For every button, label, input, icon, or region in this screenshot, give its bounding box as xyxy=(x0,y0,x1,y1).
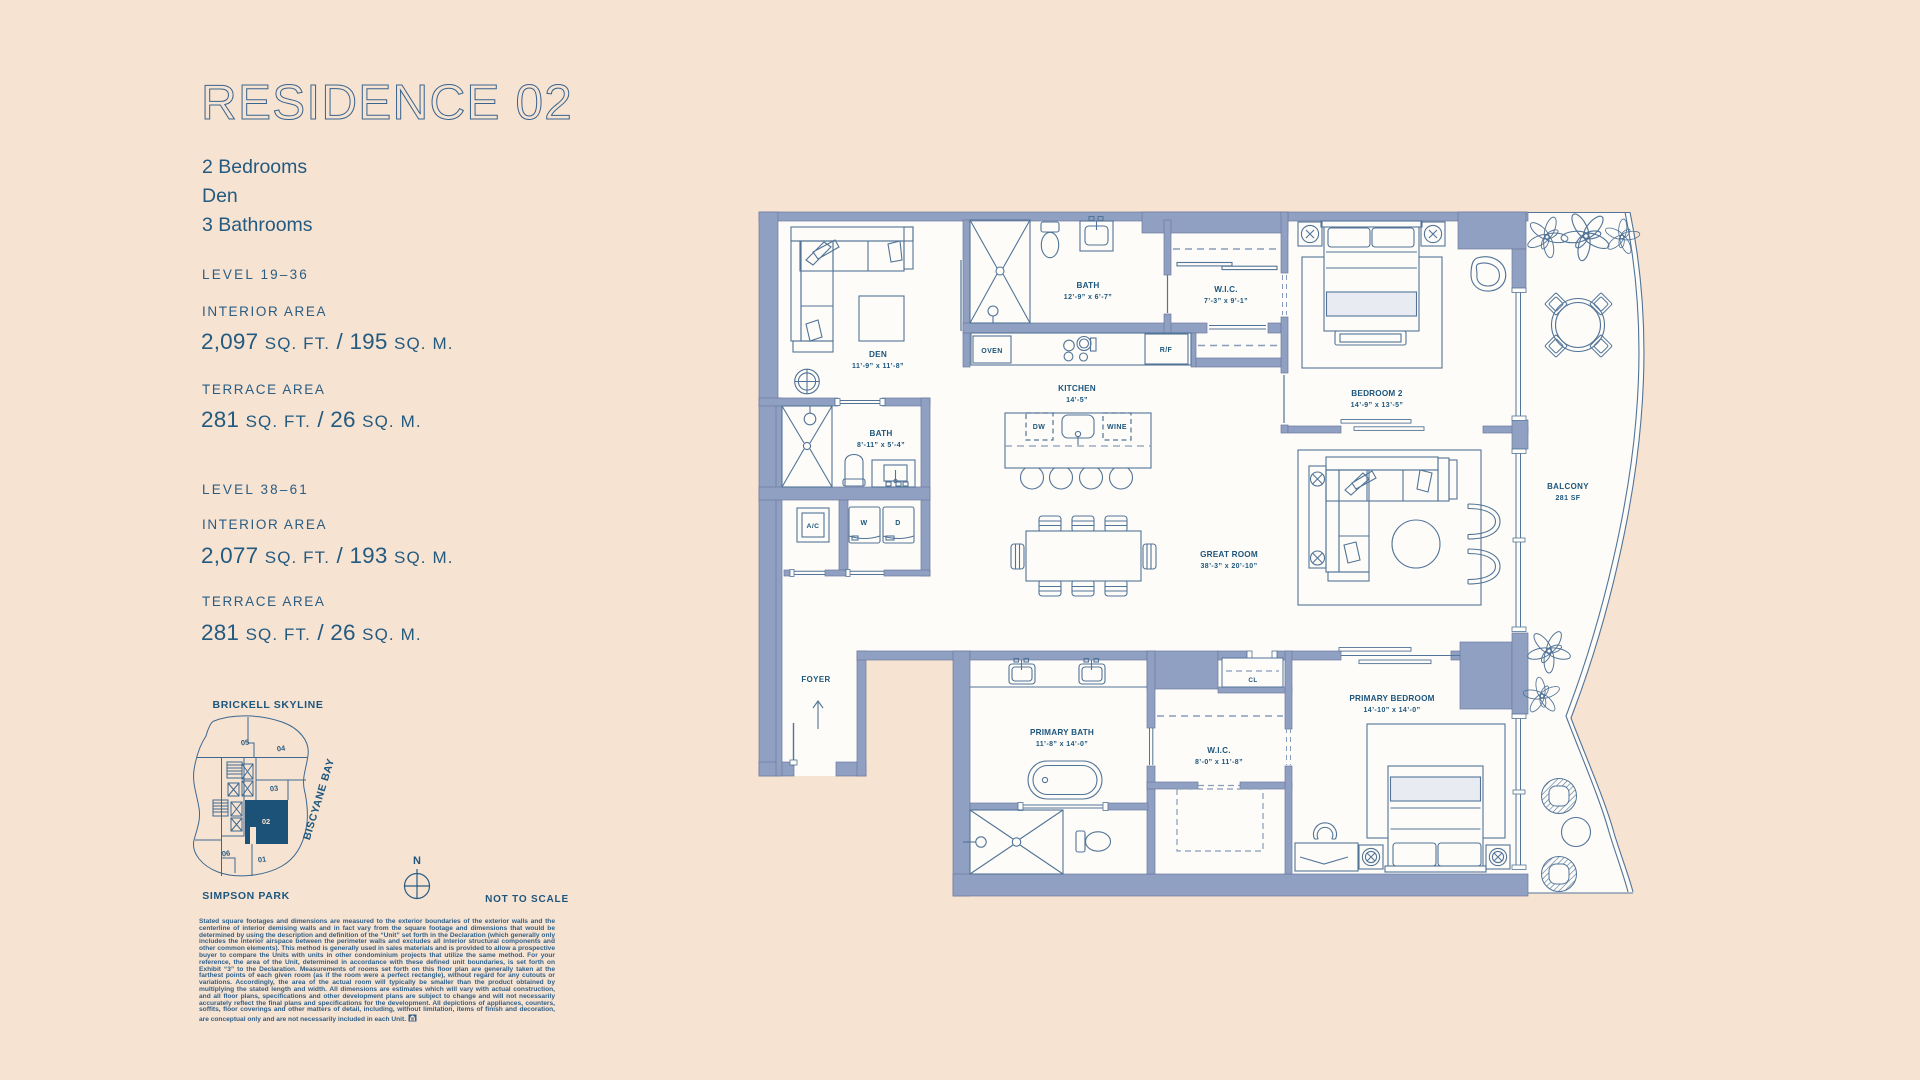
svg-text:8’-0” x 11’-8”: 8’-0” x 11’-8” xyxy=(1195,759,1243,766)
svg-text:03: 03 xyxy=(269,783,279,793)
svg-text:PRIMARY BEDROOM: PRIMARY BEDROOM xyxy=(1349,694,1434,703)
svg-text:D: D xyxy=(895,520,900,527)
svg-text:8’-11” x 5’-4”: 8’-11” x 5’-4” xyxy=(857,442,905,449)
svg-text:N: N xyxy=(413,855,421,867)
svg-text:BEDROOM 2: BEDROOM 2 xyxy=(1351,389,1403,398)
svg-text:38’-3” x 20’-10”: 38’-3” x 20’-10” xyxy=(1201,563,1258,570)
svg-text:FOYER: FOYER xyxy=(801,675,830,684)
svg-text:OVEN: OVEN xyxy=(981,348,1002,355)
svg-text:DW: DW xyxy=(1033,424,1045,431)
svg-text:281 SF: 281 SF xyxy=(1556,495,1581,502)
svg-text:PRIMARY BATH: PRIMARY BATH xyxy=(1030,728,1094,737)
svg-text:WINE: WINE xyxy=(1107,424,1127,431)
svg-text:R/F: R/F xyxy=(1160,347,1173,354)
svg-text:04: 04 xyxy=(276,743,286,753)
svg-text:W: W xyxy=(860,520,867,527)
svg-text:11’-9” x 11’-8”: 11’-9” x 11’-8” xyxy=(852,363,904,370)
svg-text:BATH: BATH xyxy=(870,429,893,438)
svg-text:BRICKELL SKYLINE: BRICKELL SKYLINE xyxy=(213,699,324,711)
svg-text:12’-9” x 6’-7”: 12’-9” x 6’-7” xyxy=(1064,294,1112,301)
svg-text:CL: CL xyxy=(1248,677,1257,684)
svg-text:14’-9” x 13’-5”: 14’-9” x 13’-5” xyxy=(1351,402,1404,409)
svg-text:A/C: A/C xyxy=(807,523,820,530)
svg-text:06: 06 xyxy=(221,848,231,858)
svg-text:BATH: BATH xyxy=(1077,281,1100,290)
svg-text:BALCONY: BALCONY xyxy=(1547,482,1589,491)
svg-text:14’-10” x 14’-0”: 14’-10” x 14’-0” xyxy=(1364,707,1421,714)
svg-text:01: 01 xyxy=(257,854,267,864)
svg-text:W.I.C.: W.I.C. xyxy=(1207,746,1231,755)
svg-text:02: 02 xyxy=(262,817,270,826)
svg-text:11’-8” x 14’-0”: 11’-8” x 14’-0” xyxy=(1036,741,1088,748)
svg-text:DEN: DEN xyxy=(869,350,887,359)
svg-text:W.I.C.: W.I.C. xyxy=(1214,285,1238,294)
svg-text:GREAT ROOM: GREAT ROOM xyxy=(1200,550,1258,559)
svg-text:NOT TO SCALE: NOT TO SCALE xyxy=(485,894,569,905)
svg-text:KITCHEN: KITCHEN xyxy=(1058,384,1096,393)
svg-text:14’-5”: 14’-5” xyxy=(1066,397,1088,404)
svg-text:SIMPSON PARK: SIMPSON PARK xyxy=(202,890,290,902)
svg-text:05: 05 xyxy=(240,737,250,747)
svg-text:7’-3” x 9’-1”: 7’-3” x 9’-1” xyxy=(1204,298,1248,305)
